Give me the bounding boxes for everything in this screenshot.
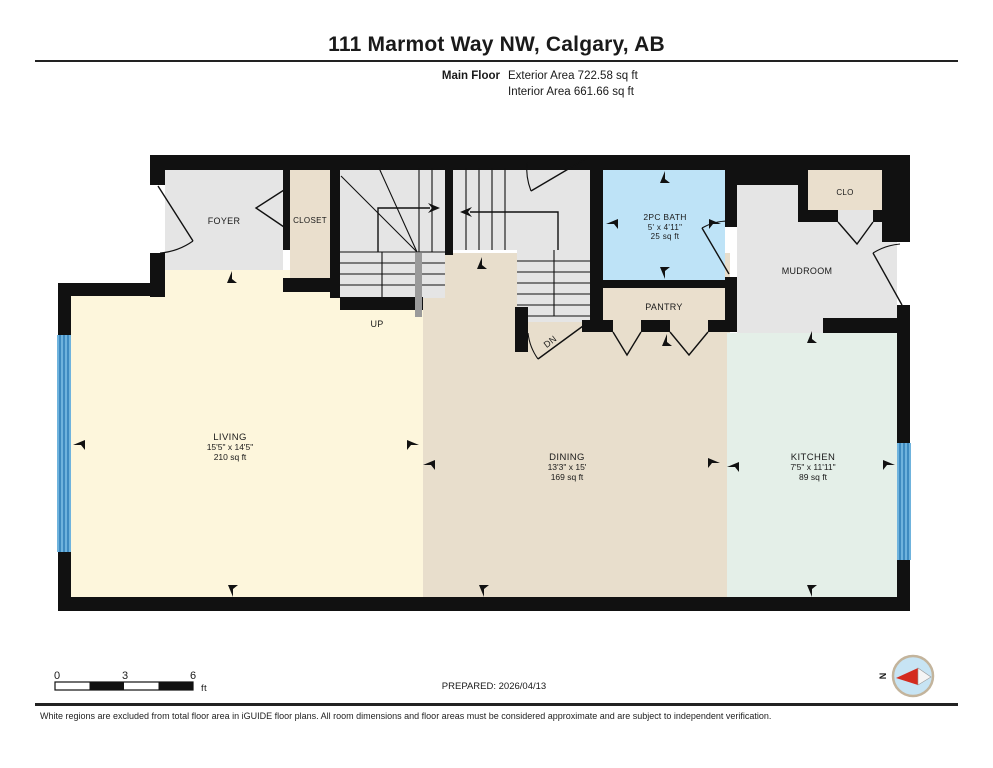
stair-upper-floor [453, 168, 590, 250]
room-fills [70, 168, 897, 597]
living-dims: 15'5" x 14'5" [207, 442, 254, 452]
floorplan-page: 111 Marmot Way NW, Calgary, AB Main Floo… [0, 0, 993, 768]
scale-tick-3: 3 [122, 670, 128, 682]
footer-divider [35, 703, 958, 706]
kitchen-window [897, 443, 911, 560]
dining-dims: 13'3" x 15' [548, 462, 587, 472]
disclaimer-text: White regions are excluded from total fl… [40, 711, 960, 721]
prepared-date-label: PREPARED: 2026/04/13 [442, 681, 546, 692]
kitchen-dims: 7'5" x 11'11" [790, 462, 835, 472]
compass-icon: N [878, 656, 933, 696]
bath-dims: 5' x 4'11" [648, 223, 683, 232]
scale-bar: 0 3 6 ft [54, 670, 207, 694]
compass-north-label: N [878, 673, 888, 680]
scale-tick-6: 6 [190, 670, 196, 682]
pantry-label: PANTRY [645, 302, 682, 312]
stair-up-floor [340, 168, 445, 298]
dining-area: 169 sq ft [551, 472, 584, 482]
kitchen-area: 89 sq ft [799, 472, 828, 482]
mudroom-label: MUDROOM [782, 266, 833, 276]
floorplan-drawing: FOYER CLOSET UP DN 2PC BATH 5' x 4'11" 2… [0, 0, 993, 768]
living-window [57, 335, 71, 552]
bath-area: 25 sq ft [651, 232, 680, 241]
living-area: 210 sq ft [214, 452, 247, 462]
closet-label: CLOSET [293, 216, 327, 225]
stairs-up-label: UP [370, 319, 383, 329]
clo-label: CLO [836, 188, 853, 197]
foyer-label: FOYER [208, 216, 241, 226]
bath-label: 2PC BATH [643, 212, 686, 222]
scale-tick-0: 0 [54, 670, 60, 682]
scale-unit-label: ft [201, 683, 207, 694]
